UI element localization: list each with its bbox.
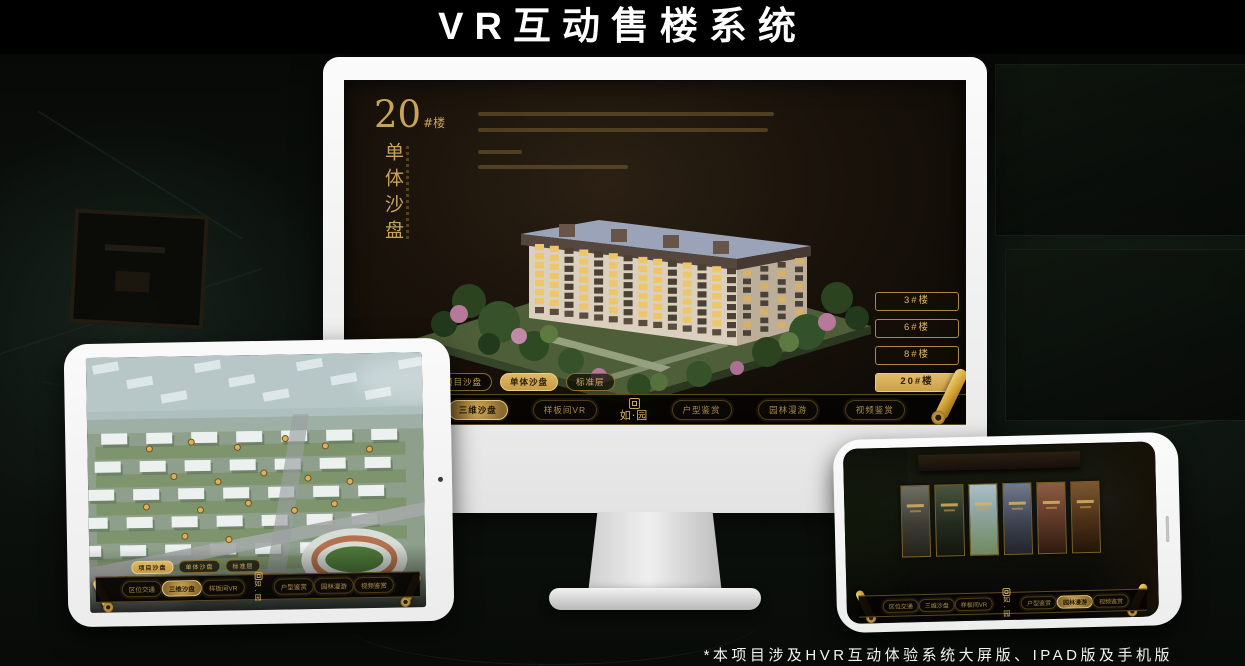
scene-gallery [900, 481, 1101, 558]
nav-item-园林漫游[interactable]: 园林漫游 [758, 400, 818, 420]
brand-logo-text: 如·园 [620, 410, 649, 421]
gallery-panel-5[interactable] [1036, 482, 1067, 555]
courtyard-gate-lintel [918, 451, 1081, 471]
framed-certificate [69, 209, 209, 330]
nav-group-left: 区位交通三维沙盘样板间VR [122, 579, 245, 597]
floor-button-group: 3#楼6#楼8#楼20#楼 [875, 292, 959, 392]
subtab-项目沙盘[interactable]: 项目沙盘 [131, 561, 173, 575]
gallery-panel-6[interactable] [1070, 481, 1101, 554]
tablet-device: 项目沙盘单体沙盘标准层 区位交通三维沙盘样板间VR 如·园 户型鉴赏园林漫游视频… [64, 338, 455, 628]
background-photo [995, 64, 1245, 236]
nav-item-视频鉴赏[interactable]: 视频鉴赏 [845, 400, 905, 420]
description-text-blurred [478, 128, 768, 132]
gallery-panel-1[interactable] [900, 485, 931, 558]
unit-suffix: #楼 [423, 116, 445, 130]
subtab-单体沙盘[interactable]: 单体沙盘 [178, 560, 220, 574]
phone-screen-app[interactable]: 区位交通三维沙盘样板间VR 如·园 户型鉴赏园林漫游视频鉴赏 [843, 441, 1159, 624]
tablet-screen-app[interactable]: 项目沙盘单体沙盘标准层 区位交通三维沙盘样板间VR 如·园 户型鉴赏园林漫游视频… [86, 352, 426, 613]
nav-group-left: 区位交通三维沙盘样板间VR [883, 597, 994, 613]
nav-group-right: 户型鉴赏园林漫游视频鉴赏 [274, 577, 394, 595]
brand-logo[interactable]: 如·园 [1003, 588, 1012, 618]
nav-item-样板间VR[interactable]: 样板间VR [955, 597, 994, 611]
nav-item-视频鉴赏[interactable]: 视频鉴赏 [1093, 594, 1129, 608]
brand-logo[interactable]: 如·园 [620, 398, 649, 421]
gallery-panel-4[interactable] [1002, 482, 1033, 555]
phone-speaker-slot [1166, 516, 1170, 542]
background-photo [1005, 249, 1245, 421]
nav-group-right: 户型鉴赏园林漫游视频鉴赏 [1021, 594, 1129, 610]
monitor-subtabs: 项目沙盘单体沙盘标准层 [434, 373, 615, 391]
page-title: VR互动售楼系统 [0, 2, 1245, 52]
footnote: *本项目涉及HVR互动体验系统大屏版、IPAD版及手机版 [704, 644, 1173, 665]
seal-icon [1003, 588, 1011, 596]
brand-logo-text: 如·园 [1003, 597, 1012, 618]
subtab-单体沙盘[interactable]: 单体沙盘 [500, 373, 558, 391]
nav-item-三维沙盘[interactable]: 三维沙盘 [919, 598, 955, 612]
monitor-stand-neck [588, 512, 722, 594]
vr-sales-system-poster: VR互动售楼系统 20#楼 单体沙盘 [0, 0, 1245, 666]
nav-item-视频鉴赏[interactable]: 视频鉴赏 [354, 577, 394, 594]
floor-button-8#楼[interactable]: 8#楼 [875, 346, 959, 365]
nav-item-园林漫游[interactable]: 园林漫游 [314, 577, 354, 594]
nav-item-区位交通[interactable]: 区位交通 [883, 599, 919, 613]
floor-button-6#楼[interactable]: 6#楼 [875, 319, 959, 338]
brand-logo-text: 如·园 [254, 581, 264, 602]
nav-item-户型鉴赏[interactable]: 户型鉴赏 [1021, 595, 1057, 609]
nav-item-三维沙盘[interactable]: 三维沙盘 [448, 400, 508, 420]
nav-item-户型鉴赏[interactable]: 户型鉴赏 [274, 578, 314, 595]
nav-item-区位交通[interactable]: 区位交通 [122, 581, 162, 598]
gallery-panel-2[interactable] [934, 484, 965, 557]
floor-button-3#楼[interactable]: 3#楼 [875, 292, 959, 311]
nav-item-样板间VR[interactable]: 样板间VR [533, 400, 597, 420]
seal-icon [629, 398, 640, 409]
tablet-subtabs: 项目沙盘单体沙盘标准层 [131, 559, 260, 574]
nav-item-园林漫游[interactable]: 园林漫游 [1057, 594, 1093, 608]
gallery-panel-3[interactable] [968, 483, 999, 556]
tablet-camera [438, 476, 443, 481]
monitor-stand-base [549, 588, 761, 610]
nav-group-right: 户型鉴赏园林漫游视频鉴赏 [658, 400, 918, 420]
nav-item-三维沙盘[interactable]: 三维沙盘 [162, 580, 202, 597]
description-text-blurred [478, 112, 774, 116]
unit-number: 20 [374, 93, 421, 136]
subtab-标准层[interactable]: 标准层 [566, 373, 615, 391]
nav-item-样板间VR[interactable]: 样板间VR [202, 579, 245, 596]
phone-device: 区位交通三维沙盘样板间VR 如·园 户型鉴赏园林漫游视频鉴赏 [833, 432, 1183, 633]
brand-logo[interactable]: 如·园 [254, 572, 264, 602]
subtab-标准层[interactable]: 标准层 [225, 559, 260, 573]
nav-item-户型鉴赏[interactable]: 户型鉴赏 [672, 400, 732, 420]
unit-title: 20#楼 [374, 96, 445, 134]
seal-icon [255, 572, 263, 580]
